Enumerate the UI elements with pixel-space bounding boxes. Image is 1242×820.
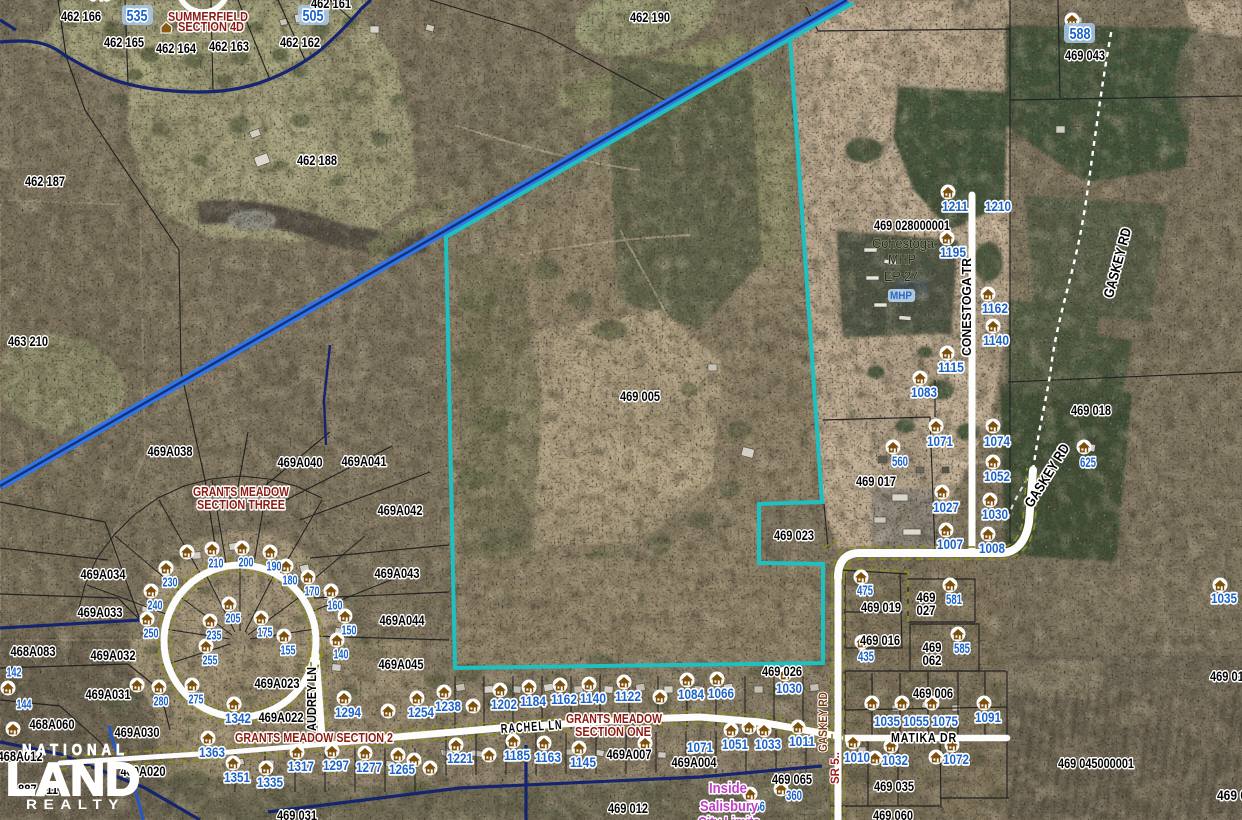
svg-text:170: 170 [305,584,320,599]
svg-text:230: 230 [163,575,178,590]
svg-text:1072: 1072 [943,752,969,767]
svg-text:REALTY: REALTY [26,796,125,812]
svg-text:SECTION 4D: SECTION 4D [178,19,244,34]
svg-text:1140: 1140 [983,333,1009,348]
svg-text:1007: 1007 [937,537,963,552]
svg-text:250: 250 [144,626,159,641]
svg-text:462 165: 462 165 [104,34,144,50]
svg-text:210: 210 [209,556,224,571]
svg-text:1055: 1055 [903,714,929,729]
svg-text:469A044: 469A044 [380,612,425,628]
svg-text:280: 280 [154,694,169,709]
svg-text:GRANTS MEADOW SECTION 2: GRANTS MEADOW SECTION 2 [235,730,393,745]
svg-text:142: 142 [7,665,22,680]
svg-text:1052: 1052 [984,469,1010,484]
svg-text:469 0: 469 0 [1217,787,1242,803]
svg-text:1162: 1162 [982,301,1008,316]
svg-text:469A023: 469A023 [255,675,300,691]
svg-text:1145: 1145 [570,755,596,770]
svg-text:1030: 1030 [982,507,1008,522]
svg-text:469A033: 469A033 [78,604,123,620]
svg-text:535: 535 [127,8,148,25]
svg-text:1195: 1195 [940,245,966,260]
svg-text:160: 160 [328,598,343,613]
svg-text:475: 475 [857,582,873,598]
svg-text:1140: 1140 [580,691,606,706]
svg-text:462 161: 462 161 [311,0,351,11]
svg-text:200: 200 [239,555,254,570]
svg-text:1185: 1185 [504,748,530,763]
svg-text:469A034: 469A034 [81,566,126,582]
svg-text:255: 255 [203,653,218,668]
svg-text:1342: 1342 [225,711,251,726]
svg-text:1297: 1297 [323,758,349,773]
svg-text:469 060: 469 060 [873,807,913,820]
svg-text:1238: 1238 [435,699,461,714]
svg-text:1091: 1091 [975,710,1001,725]
svg-text:GASKEY RD: GASKEY RD [816,692,830,752]
svg-text:360: 360 [786,787,802,803]
svg-text:1027: 1027 [933,500,959,515]
svg-text:560: 560 [892,453,908,469]
svg-text:462 166: 462 166 [61,8,101,24]
svg-text:469 031: 469 031 [277,807,317,820]
svg-text:1071: 1071 [927,434,953,449]
svg-text:469 045000001: 469 045000001 [1058,755,1134,771]
svg-text:240: 240 [148,598,163,613]
svg-text:1066: 1066 [708,686,734,701]
svg-text:469A032: 469A032 [91,647,136,663]
svg-text:140: 140 [334,647,349,662]
svg-text:1202: 1202 [491,697,517,712]
svg-text:175: 175 [258,625,273,640]
svg-text:468A060: 468A060 [30,716,75,732]
svg-text:1008: 1008 [979,541,1005,556]
svg-text:1277: 1277 [356,760,382,775]
svg-text:468A083: 468A083 [11,643,56,659]
svg-text:027: 027 [917,602,936,618]
svg-text:588: 588 [1070,26,1091,43]
svg-text:1351: 1351 [224,770,250,785]
svg-text:Cohestoga: Cohestoga [872,235,934,251]
svg-text:1033: 1033 [755,737,781,752]
svg-text:155: 155 [281,643,296,658]
svg-text:CONESTOGA TR: CONESTOGA TR [959,257,974,356]
svg-text:275: 275 [189,692,204,707]
svg-text:1363: 1363 [199,745,225,760]
svg-text:469A045: 469A045 [379,656,424,672]
svg-text:1115: 1115 [938,360,964,375]
svg-text:469A040: 469A040 [278,454,323,470]
svg-text:144: 144 [17,697,33,712]
svg-text:1035: 1035 [874,714,900,729]
svg-text:1221: 1221 [447,751,473,766]
svg-text:462 164: 462 164 [156,40,196,56]
svg-text:469 016: 469 016 [1210,668,1242,684]
svg-text:MHP: MHP [888,251,916,267]
svg-text:SECTION ONE: SECTION ONE [575,724,651,739]
svg-text:235: 235 [207,628,222,643]
svg-text:435: 435 [858,648,874,664]
svg-text:469A030: 469A030 [115,724,160,740]
svg-text:Salisbury: Salisbury [700,798,759,815]
svg-text:545: 545 [90,0,111,4]
svg-text:MATIKA DR: MATIKA DR [891,730,957,745]
svg-text:585: 585 [954,640,970,656]
svg-text:1254: 1254 [408,705,434,720]
svg-text:1071: 1071 [687,740,713,755]
svg-text:1163: 1163 [535,750,561,765]
svg-text:469A004: 469A004 [672,754,717,770]
svg-text:469 043: 469 043 [1065,47,1105,63]
svg-text:SECTION THREE: SECTION THREE [197,497,285,512]
svg-text:469 017: 469 017 [856,473,896,489]
svg-text:205: 205 [226,611,241,626]
svg-text:625: 625 [1080,454,1096,470]
svg-text:180: 180 [283,573,298,588]
svg-text:MHP: MHP [890,290,912,302]
svg-text:150: 150 [342,623,357,638]
svg-text:469A043: 469A043 [375,565,420,581]
svg-text:1294: 1294 [335,705,361,720]
svg-text:469 028000001: 469 028000001 [874,217,950,233]
svg-text:469A041: 469A041 [342,453,387,469]
svg-text:463 210: 463 210 [8,333,48,349]
svg-text:1210: 1210 [985,199,1011,214]
svg-text:City Limits: City Limits [698,814,760,820]
svg-text:AUDREY LN: AUDREY LN [304,667,319,731]
svg-text:469 012: 469 012 [608,800,648,816]
svg-text:469 018: 469 018 [1071,402,1111,418]
svg-text:1011: 1011 [789,734,815,749]
svg-text:469 035: 469 035 [874,778,914,794]
svg-text:469A038: 469A038 [148,443,193,459]
svg-text:462 190: 462 190 [630,9,670,25]
svg-text:469A031: 469A031 [86,686,131,702]
svg-text:462 163: 462 163 [209,38,249,54]
svg-text:1035: 1035 [1211,591,1237,606]
svg-text:1084: 1084 [678,687,704,702]
svg-text:1074: 1074 [984,434,1010,449]
svg-text:1032: 1032 [882,753,908,768]
svg-text:1335: 1335 [257,775,283,790]
svg-text:581: 581 [946,591,962,607]
svg-text:1265: 1265 [389,762,415,777]
svg-text:469A022: 469A022 [259,709,304,725]
svg-text:062: 062 [923,652,942,668]
svg-text:190: 190 [267,559,282,574]
svg-text:1075: 1075 [932,714,958,729]
svg-text:469 026: 469 026 [762,663,802,679]
svg-text:462 162: 462 162 [280,34,320,50]
svg-text:Inside: Inside [709,780,747,797]
svg-text:469 065: 469 065 [772,771,812,787]
svg-text:469 019: 469 019 [861,599,901,615]
svg-text:SR 5..: SR 5.. [828,752,842,784]
svg-text:1083: 1083 [911,385,937,400]
svg-text:1010: 1010 [844,750,870,765]
svg-text:469 005: 469 005 [620,388,660,404]
svg-text:462 187: 462 187 [25,173,65,189]
svg-text:1317: 1317 [288,759,314,774]
svg-text:1162: 1162 [551,692,577,707]
svg-text:469 006: 469 006 [913,685,953,701]
svg-text:1122: 1122 [615,689,641,704]
svg-text:469A007: 469A007 [607,746,652,762]
svg-text:462 188: 462 188 [297,152,337,168]
svg-text:1184: 1184 [520,694,546,709]
svg-text:469A042: 469A042 [378,502,423,518]
svg-text:1051: 1051 [722,737,748,752]
svg-text:469 023: 469 023 [774,527,814,543]
svg-text:1211: 1211 [942,199,968,214]
svg-text:1030: 1030 [776,681,802,696]
svg-text:EP 27: EP 27 [884,268,918,284]
svg-text:469 016: 469 016 [860,632,900,648]
